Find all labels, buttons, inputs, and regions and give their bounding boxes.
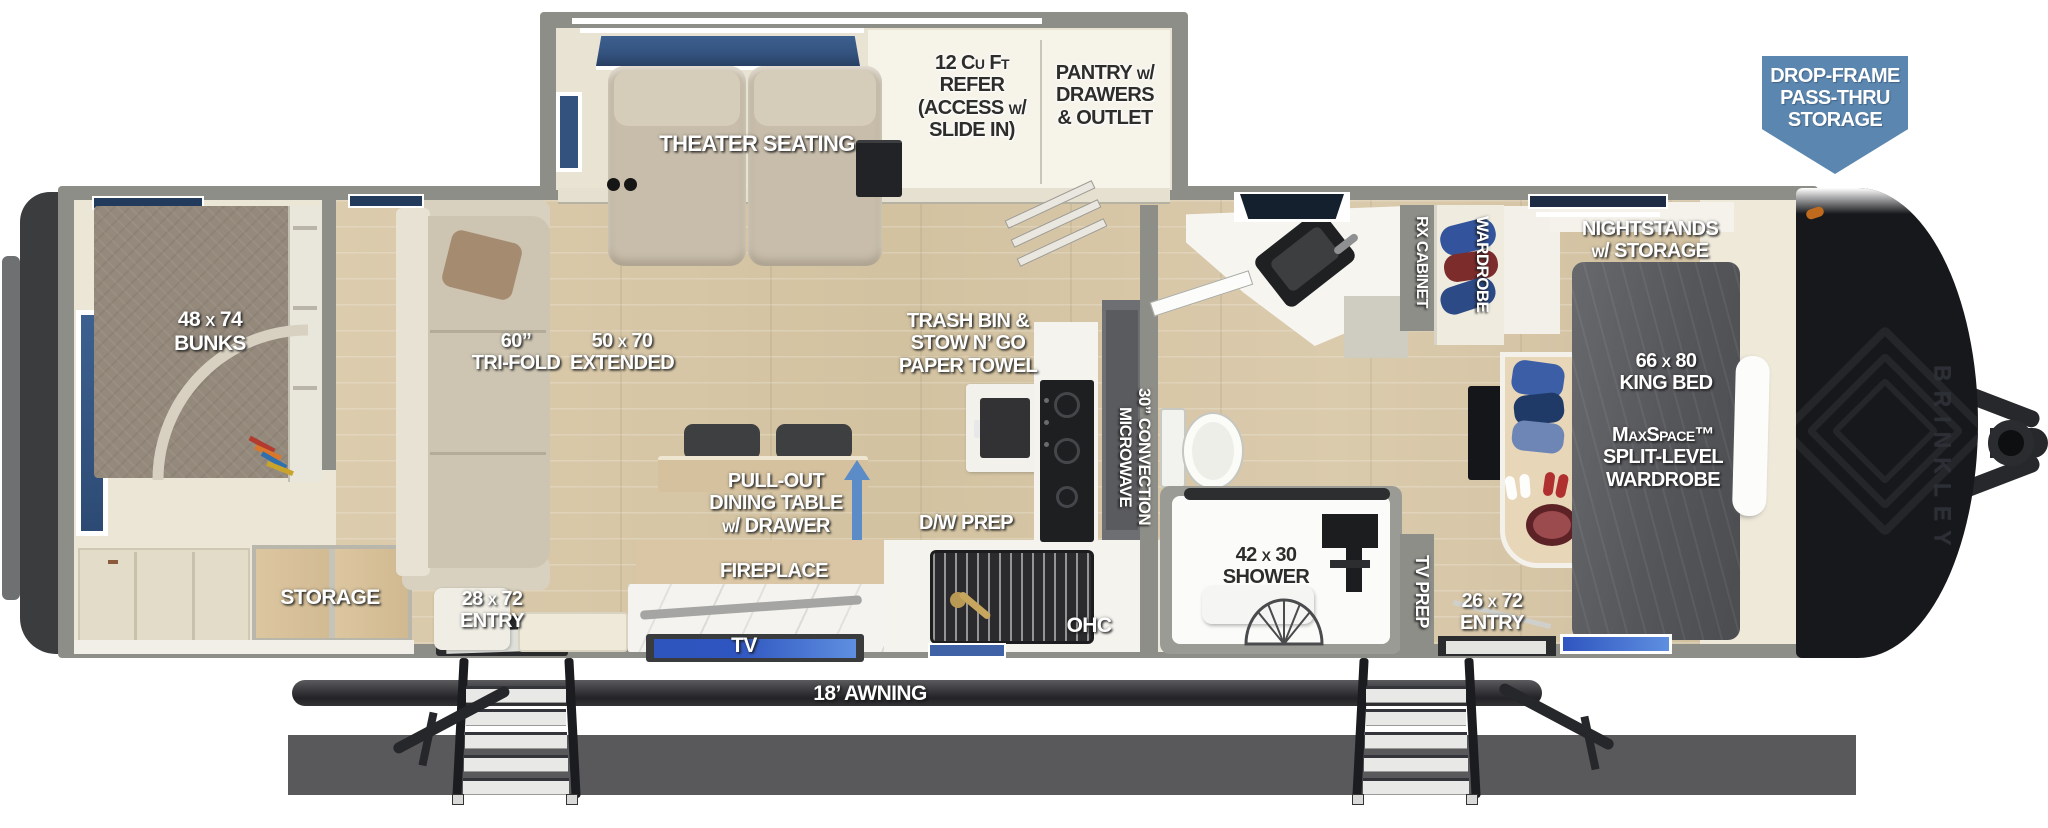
bunk-rail-slot bbox=[293, 226, 317, 230]
cabinet-door-line bbox=[134, 552, 137, 640]
step-foot bbox=[452, 794, 464, 805]
shower-handle bbox=[1330, 560, 1370, 568]
niche-handle bbox=[974, 420, 980, 438]
sink-window bbox=[928, 643, 1006, 658]
sofa-top-window bbox=[348, 194, 424, 208]
knob bbox=[1044, 420, 1049, 425]
label-microwave: 30” CONVECTION MICROWAVE bbox=[1106, 362, 1154, 552]
seat-back bbox=[614, 70, 740, 126]
label-dining-table: PULL-OUT DINING TABLE w/ DRAWER bbox=[709, 470, 843, 537]
label-extended: 50 x 70 EXTENDED bbox=[570, 330, 674, 375]
bedroom-bottom-window bbox=[1560, 634, 1672, 654]
drop-frame-callout: DROP-FRAME PASS-THRU STORAGE bbox=[1762, 56, 1908, 174]
step-foot bbox=[566, 794, 578, 805]
step-tread bbox=[1365, 732, 1467, 749]
label-brand: BRINKLEY bbox=[1925, 325, 1955, 595]
art-supplies bbox=[248, 442, 250, 444]
shower-door-track bbox=[1184, 488, 1390, 500]
label-fireplace: FIREPLACE bbox=[720, 560, 828, 582]
label-wardrobe: WARDROBE bbox=[1462, 202, 1492, 326]
knob bbox=[1044, 442, 1049, 447]
bath-skylight bbox=[1240, 194, 1344, 219]
pantry-divider bbox=[1040, 40, 1042, 184]
hitch-coupler bbox=[1988, 420, 2034, 466]
label-entry-right: 26 x 72 ENTRY bbox=[1460, 590, 1524, 635]
label-theater-seating: THEATER SEATING bbox=[659, 132, 855, 157]
toilet-seat bbox=[1192, 422, 1234, 480]
entry-cubby bbox=[518, 612, 628, 652]
step-tread bbox=[1363, 778, 1469, 795]
sofa-seam bbox=[430, 452, 546, 455]
dining-stool bbox=[684, 424, 760, 460]
step-tread bbox=[1366, 686, 1466, 703]
burner bbox=[1054, 392, 1080, 418]
label-entry-left: 28 x 72 ENTRY bbox=[460, 588, 524, 633]
nightstand-light bbox=[1536, 212, 1660, 217]
bedroom-top-window bbox=[1528, 194, 1668, 209]
slide-roof-strip bbox=[580, 28, 864, 33]
folded-clothes bbox=[1511, 419, 1566, 454]
step-foot bbox=[1352, 794, 1364, 805]
cabinet-handle bbox=[108, 560, 118, 564]
label-shower: 42 x 30 SHOWER bbox=[1223, 544, 1309, 589]
awning-rail bbox=[616, 669, 866, 676]
label-trash-stow: TRASH BIN & STOW N’ GO PAPER TOWEL bbox=[899, 310, 1037, 377]
awning-rail bbox=[918, 669, 1118, 676]
label-tv: TV bbox=[731, 634, 757, 658]
bunk-rail-slot bbox=[293, 306, 317, 310]
cupholder bbox=[624, 178, 637, 191]
shoe bbox=[1519, 474, 1531, 499]
slide-roof-strip bbox=[572, 18, 1042, 24]
label-maxspace: MaxSpace™ SPLIT-LEVEL WARDROBE bbox=[1603, 424, 1723, 491]
label-tv-prep: TV PREP bbox=[1402, 532, 1432, 650]
burner bbox=[1056, 486, 1078, 508]
step-tread bbox=[463, 778, 569, 795]
right-entry-door bbox=[1446, 641, 1546, 654]
cabinet-door-line bbox=[192, 552, 195, 640]
counter-strip bbox=[74, 640, 414, 654]
label-ohc: OHC bbox=[1067, 614, 1112, 638]
bunkroom-cabinet bbox=[78, 548, 250, 644]
step-tread bbox=[1364, 755, 1468, 772]
drop-frame-callout-text: DROP-FRAME PASS-THRU STORAGE bbox=[1762, 56, 1908, 131]
step-tread bbox=[464, 755, 568, 772]
rv-floorplan: DROP-FRAME PASS-THRU STORAGE 12 Cu Ft RE… bbox=[0, 0, 2048, 828]
sofa-back bbox=[396, 208, 430, 576]
label-dw-prep: D/W PREP bbox=[919, 512, 1013, 534]
dining-stool bbox=[776, 424, 852, 460]
label-refer: 12 Cu Ft REFER (ACCESS w/ SLIDE IN) bbox=[918, 52, 1026, 142]
label-king-bed: 66 x 80 KING BED bbox=[1620, 350, 1713, 395]
rear-bumper bbox=[2, 256, 20, 600]
slideout-top-window bbox=[596, 36, 860, 66]
label-storage: STORAGE bbox=[280, 586, 379, 610]
bed-pillow bbox=[1732, 356, 1770, 517]
seat-back bbox=[754, 70, 876, 126]
step-tread bbox=[465, 732, 567, 749]
step-tread bbox=[1366, 709, 1466, 726]
stow-n-go-niche bbox=[980, 398, 1030, 458]
label-nightstands: NIGHTSTANDS w/ STORAGE bbox=[1582, 218, 1718, 263]
slideout-side-window bbox=[556, 92, 582, 172]
hat bbox=[1526, 504, 1578, 546]
step-tread bbox=[466, 709, 566, 726]
cupholder bbox=[607, 178, 620, 191]
step-foot bbox=[1466, 794, 1478, 805]
shower-drain-fan bbox=[1240, 594, 1328, 648]
knob bbox=[1044, 398, 1049, 403]
label-bunks: 48 x 74 BUNKS bbox=[174, 308, 246, 355]
label-rx-cabinet: RX CABINET bbox=[1404, 198, 1430, 326]
refrigerator bbox=[856, 140, 902, 197]
label-tri-fold: 60” TRI-FOLD bbox=[472, 330, 561, 375]
shower-valve-stem bbox=[1346, 514, 1362, 592]
label-awning: 18’ AWNING bbox=[813, 682, 926, 706]
vanity-base-cabinet bbox=[1344, 296, 1408, 358]
label-pantry: PANTRY w/ DRAWERS & OUTLET bbox=[1056, 62, 1155, 129]
burner bbox=[1054, 438, 1080, 464]
